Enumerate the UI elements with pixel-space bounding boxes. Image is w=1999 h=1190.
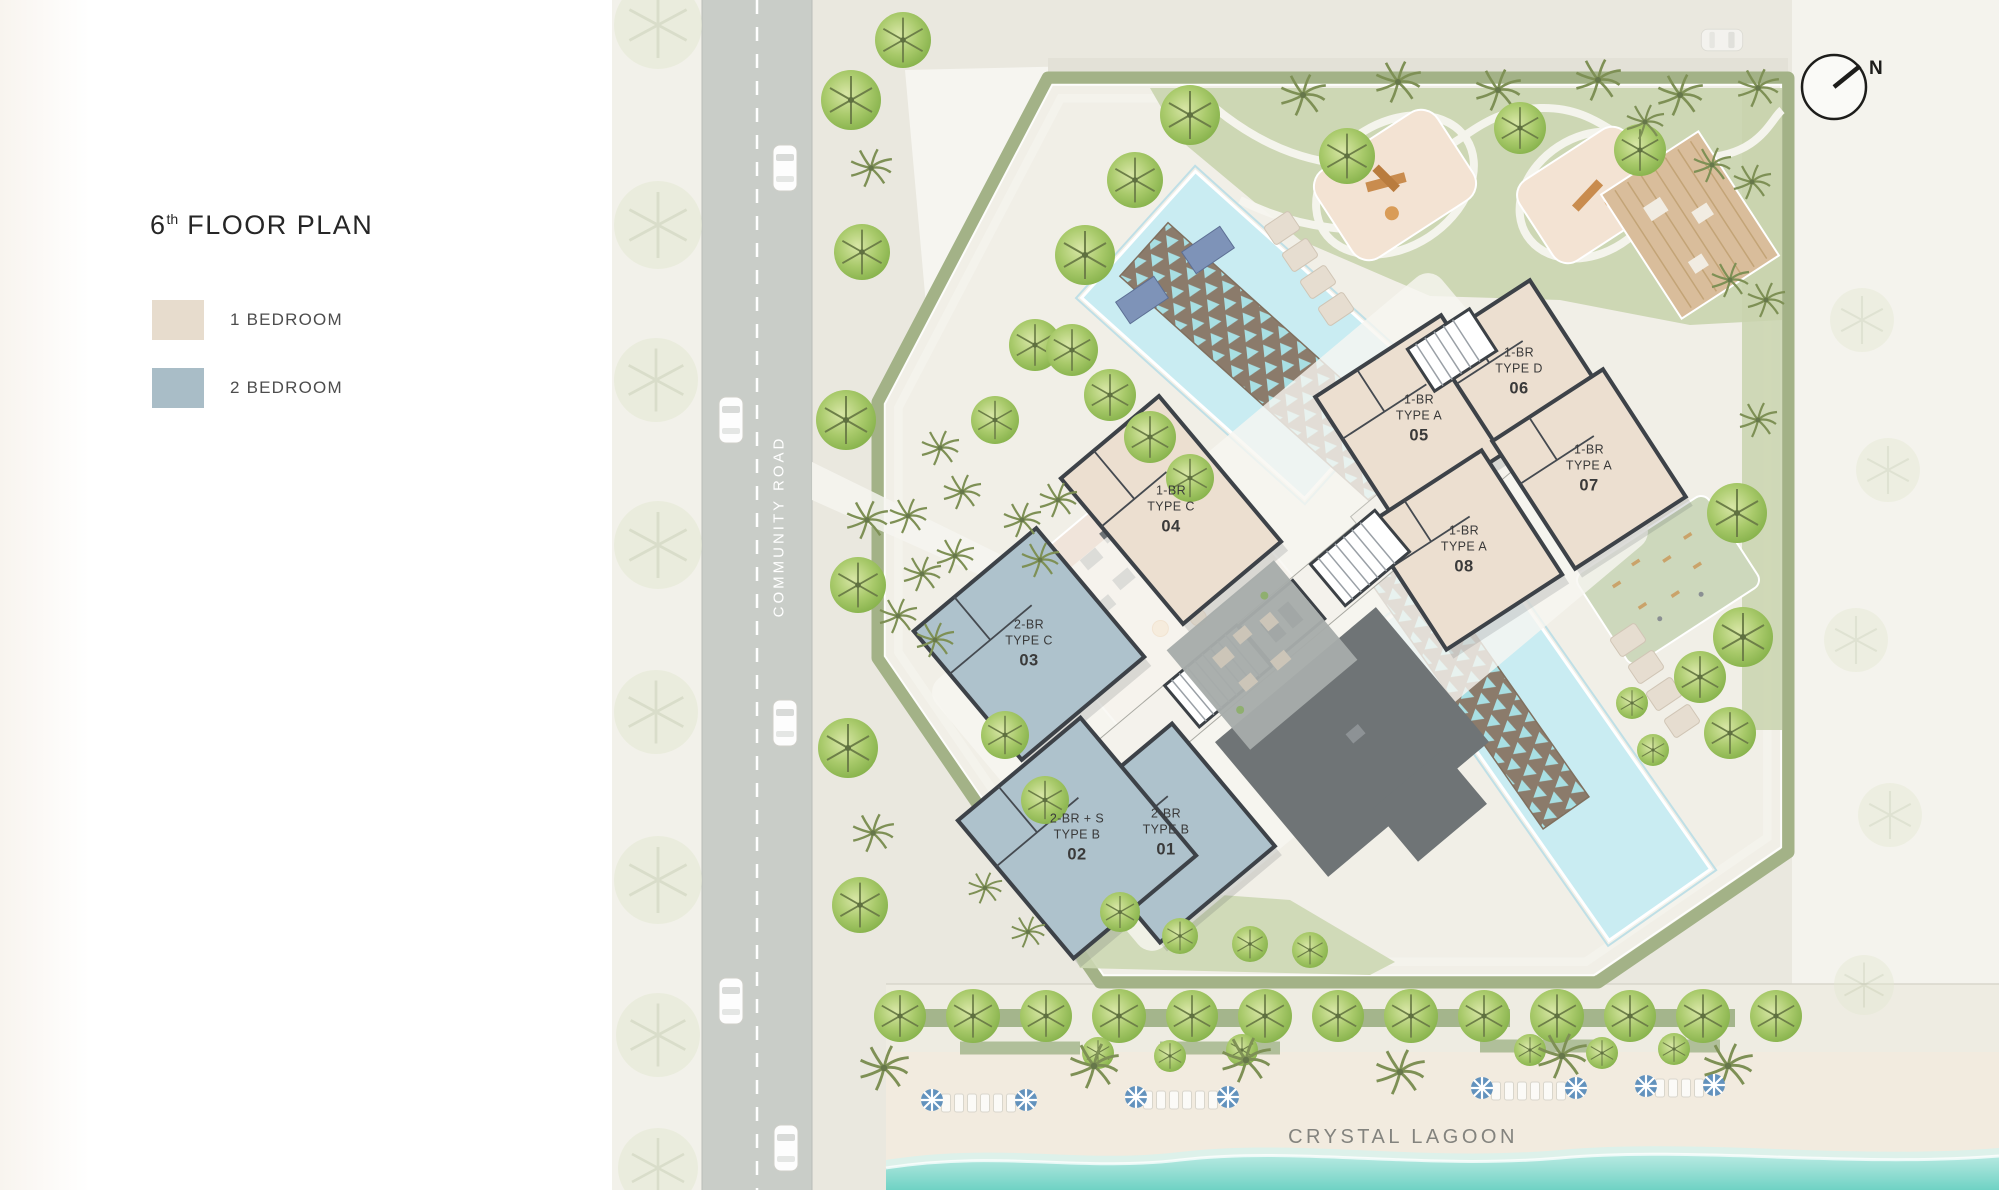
site-plan-graphic: N	[0, 0, 1999, 1190]
crystal-lagoon-label: CRYSTAL LAGOON	[1253, 1126, 1553, 1149]
unit-06-label[interactable]: 1-BR TYPE D 06	[1449, 345, 1589, 398]
unit-02-label[interactable]: 2-BR + S TYPE B 02	[1007, 811, 1147, 864]
community-road-label: COMMUNITY ROAD	[771, 377, 788, 677]
left-edge-tint	[0, 0, 90, 1190]
unit-05-label[interactable]: 1-BR TYPE A 05	[1349, 392, 1489, 445]
title-text: FLOOR PLAN	[187, 210, 373, 240]
legend-item-2br: 2 BEDROOM	[152, 368, 343, 408]
compass-north-label: N	[1869, 58, 1883, 79]
legend-swatch-2br	[152, 368, 204, 408]
unit-04-label[interactable]: 1-BR TYPE C 04	[1101, 483, 1241, 536]
unit-07-label[interactable]: 1-BR TYPE A 07	[1519, 442, 1659, 495]
legend-label-2br: 2 BEDROOM	[230, 378, 343, 398]
unit-03-label[interactable]: 2-BR TYPE C 03	[959, 617, 1099, 670]
legend-swatch-1br	[152, 300, 204, 340]
legend-item-1br: 1 BEDROOM	[152, 300, 343, 340]
floor-plan-page: N 6th FLOOR PLAN 1 BEDROOM 2 BEDROOM COM…	[0, 0, 1999, 1190]
floor-number: 6	[150, 210, 167, 240]
unit-08-label[interactable]: 1-BR TYPE A 08	[1394, 523, 1534, 576]
legend-label-1br: 1 BEDROOM	[230, 310, 343, 330]
floor-ordinal: th	[167, 211, 179, 227]
page-title: 6th FLOOR PLAN	[150, 210, 373, 241]
